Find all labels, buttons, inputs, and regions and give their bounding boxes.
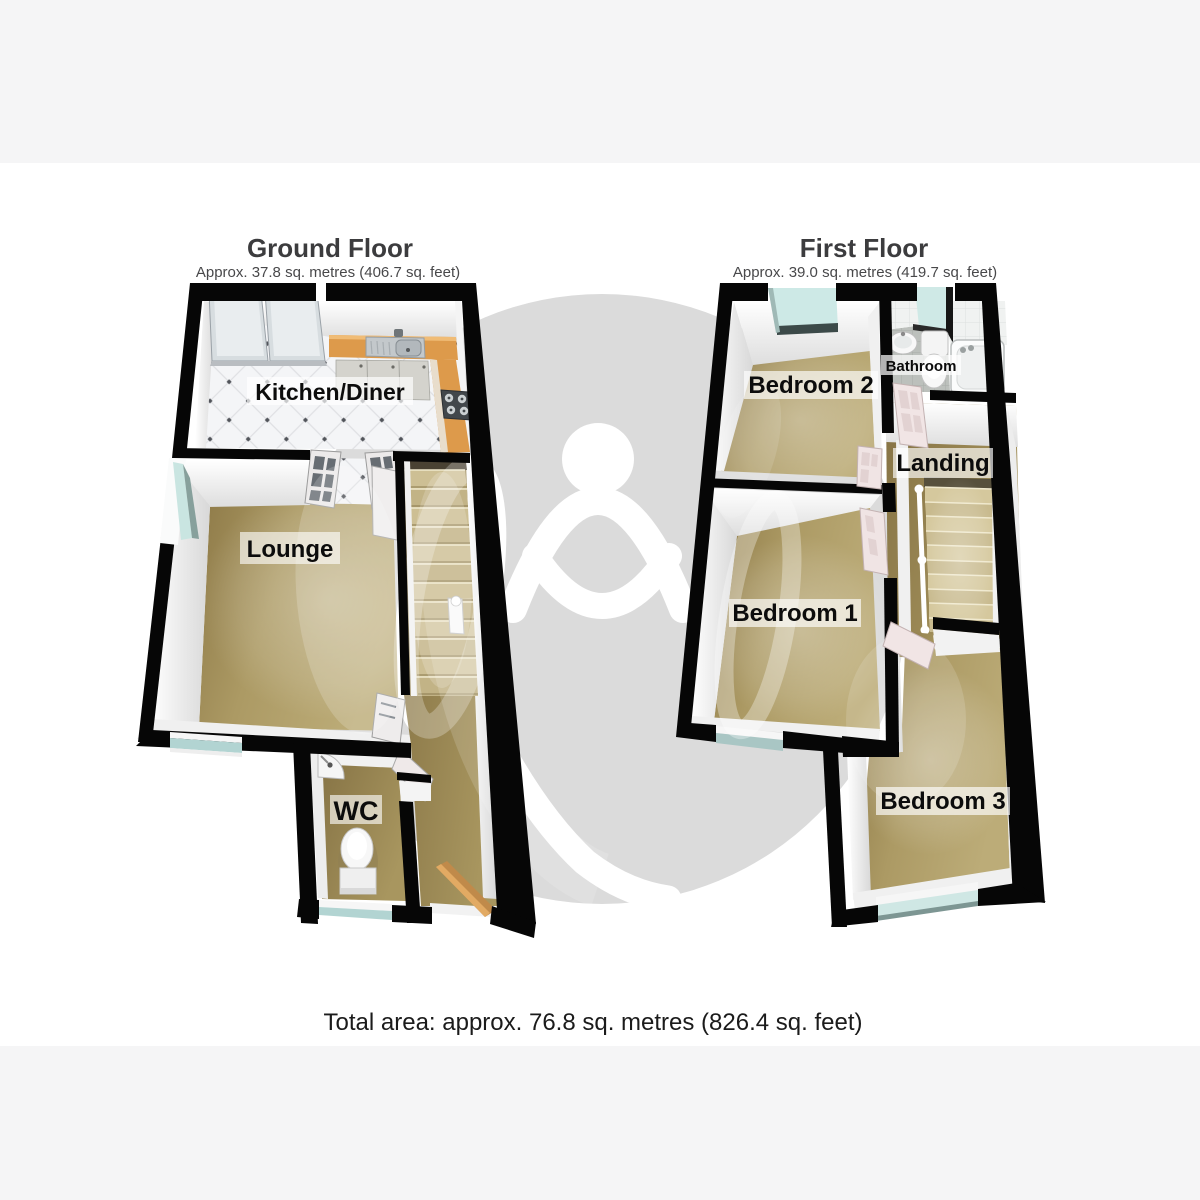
svg-text:First Floor: First Floor <box>800 233 929 263</box>
svg-text:Kitchen/Diner: Kitchen/Diner <box>255 379 405 405</box>
svg-text:Landing: Landing <box>896 450 989 477</box>
svg-text:Total area: approx. 76.8 sq. m: Total area: approx. 76.8 sq. metres (826… <box>324 1009 863 1036</box>
svg-text:Bedroom 2: Bedroom 2 <box>748 372 873 399</box>
svg-text:Approx. 39.0 sq. metres (419.7: Approx. 39.0 sq. metres (419.7 sq. feet) <box>733 264 997 281</box>
svg-text:Lounge: Lounge <box>247 536 334 563</box>
svg-text:Approx. 37.8 sq. metres (406.7: Approx. 37.8 sq. metres (406.7 sq. feet) <box>196 264 460 281</box>
svg-text:WC: WC <box>334 796 379 826</box>
svg-text:Ground Floor: Ground Floor <box>247 233 413 263</box>
svg-text:Bathroom: Bathroom <box>886 358 957 375</box>
svg-text:Bedroom 1: Bedroom 1 <box>732 600 857 627</box>
svg-text:Bedroom 3: Bedroom 3 <box>880 788 1005 815</box>
